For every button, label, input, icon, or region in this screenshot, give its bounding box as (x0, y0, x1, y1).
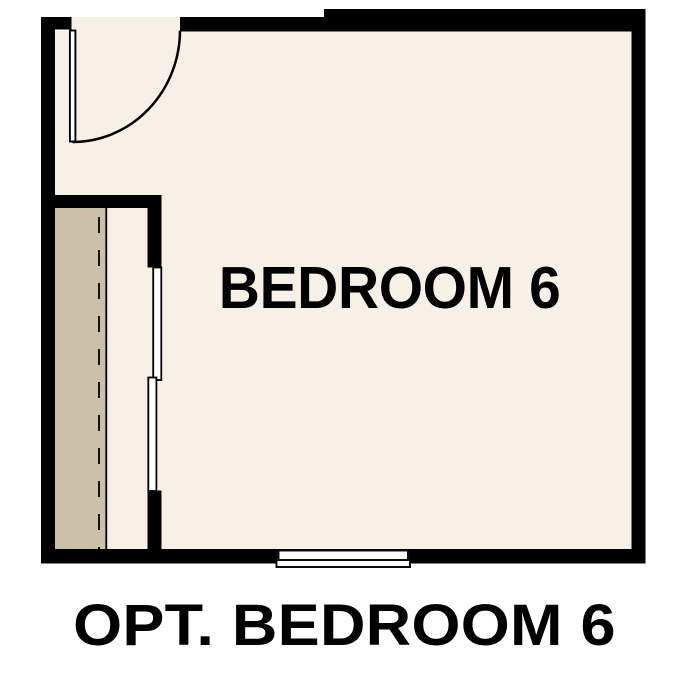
svg-text:OPT. BEDROOM 6: OPT. BEDROOM 6 (73, 592, 615, 657)
svg-text:BEDROOM 6: BEDROOM 6 (219, 255, 561, 321)
